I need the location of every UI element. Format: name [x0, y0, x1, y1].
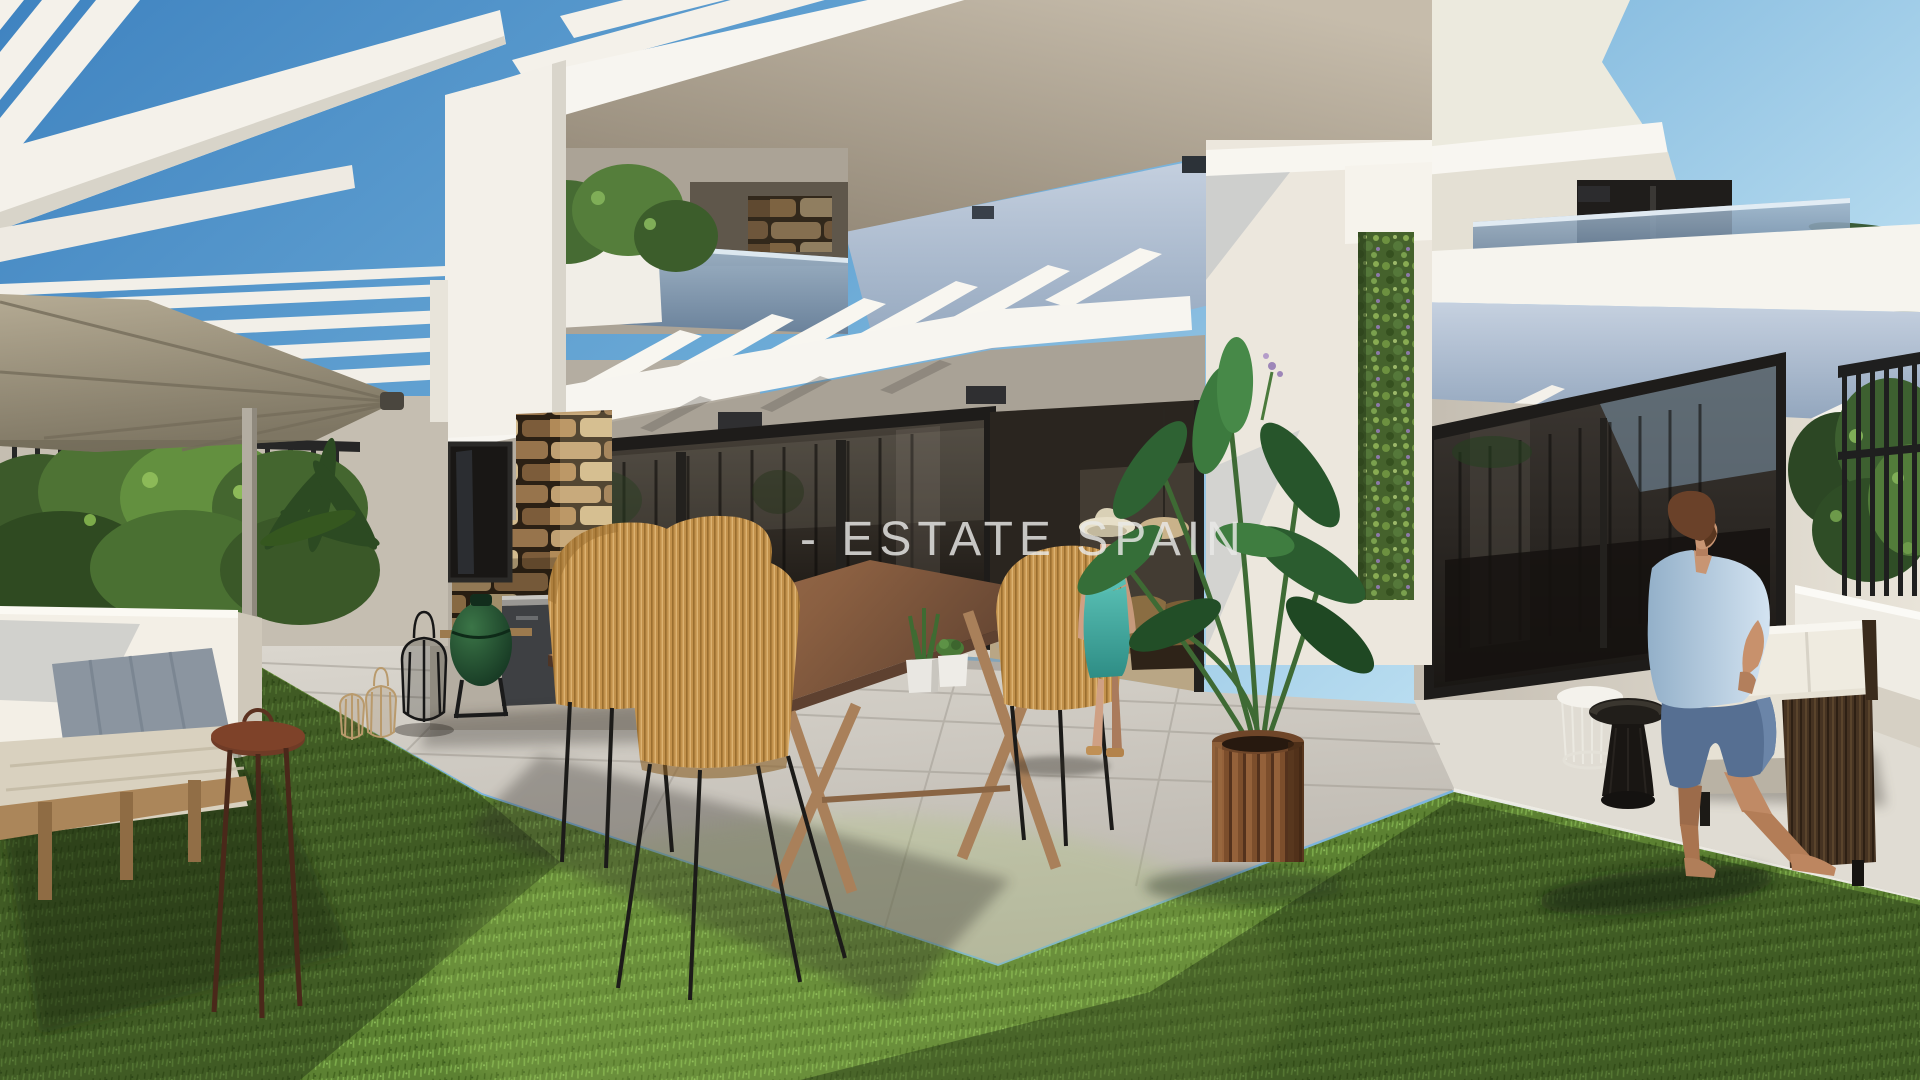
- door-wall-light2-icon: [966, 386, 1006, 404]
- scene-canvas: [0, 0, 1920, 1080]
- wood-planter: [1212, 730, 1304, 862]
- render-image: - ESTATE SPAIN: [0, 0, 1920, 1080]
- main-column: [445, 60, 566, 438]
- window-left: [448, 444, 510, 580]
- upper-wall-light-icon: [972, 206, 994, 219]
- dress: [1084, 586, 1130, 678]
- vertical-garden: [1358, 232, 1414, 600]
- green-wall-beam: [1345, 162, 1432, 244]
- right-upper-wall-light-icon: [1578, 186, 1610, 202]
